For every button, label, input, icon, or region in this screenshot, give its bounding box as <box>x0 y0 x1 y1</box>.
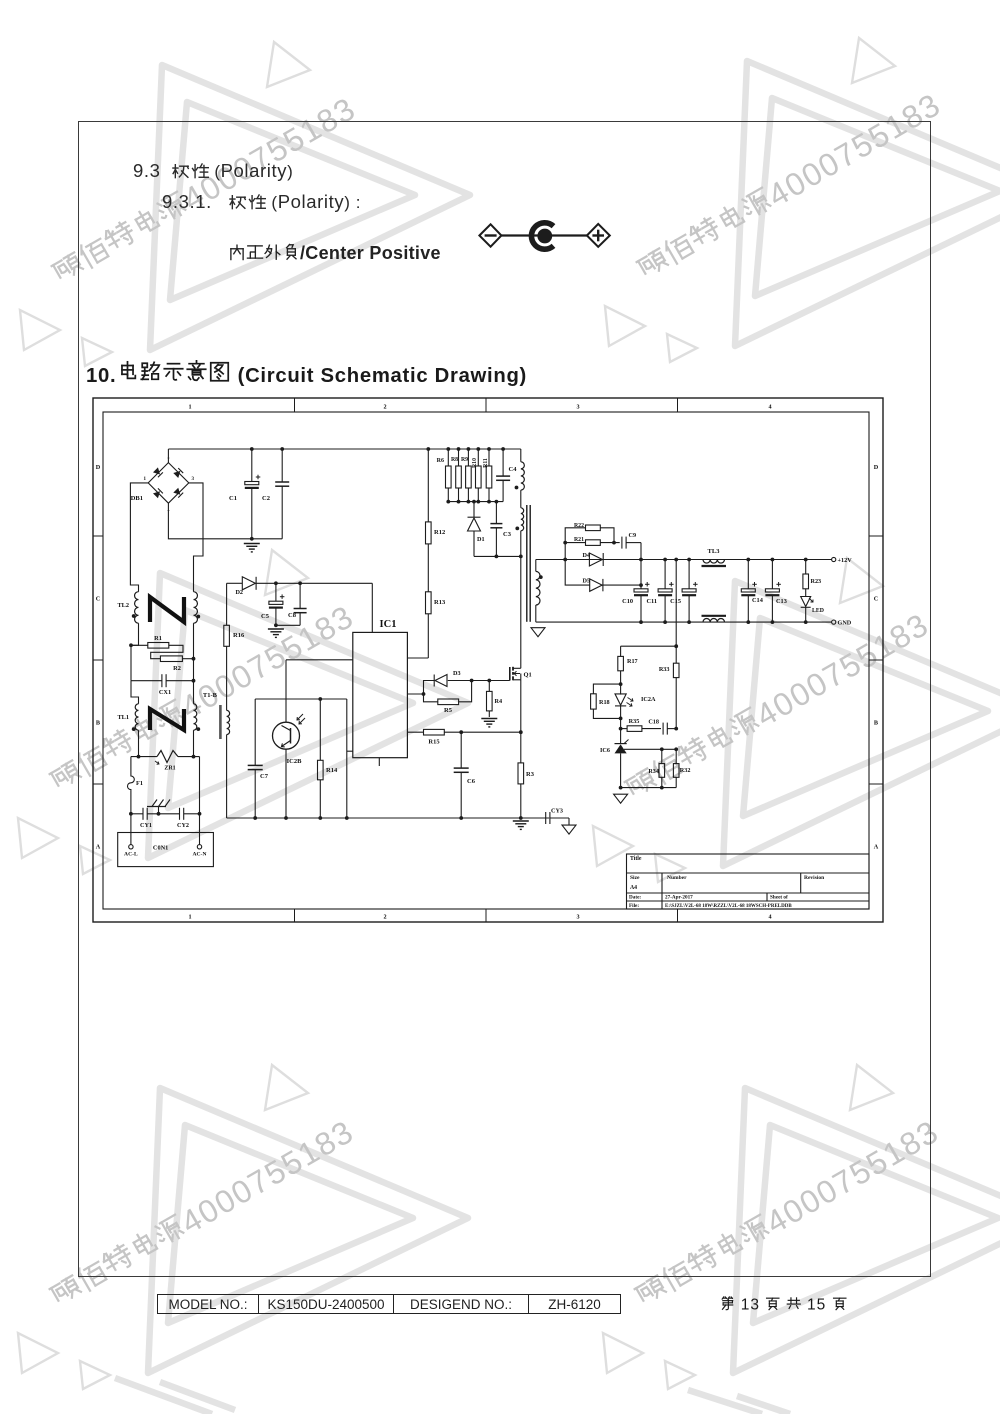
svg-text:C10: C10 <box>622 598 633 605</box>
svg-text:R15: R15 <box>428 739 440 746</box>
svg-text:R3: R3 <box>526 771 535 778</box>
svg-text:File:: File: <box>629 903 639 909</box>
svg-text:Size: Size <box>630 875 640 881</box>
svg-text:R33: R33 <box>659 666 670 673</box>
svg-text:IC2A: IC2A <box>641 696 656 703</box>
svg-text:D2: D2 <box>235 589 243 596</box>
svg-text:2: 2 <box>383 404 386 411</box>
svg-text:C2: C2 <box>262 495 270 502</box>
svg-text:R18: R18 <box>599 699 610 706</box>
svg-text:CY2: CY2 <box>177 822 189 829</box>
svg-text:R21: R21 <box>574 537 584 543</box>
svg-text:1: 1 <box>188 914 191 921</box>
svg-text:DB1: DB1 <box>131 495 143 502</box>
svg-text:B: B <box>874 720 878 727</box>
svg-text:A: A <box>874 844 879 851</box>
svg-text:R8: R8 <box>451 457 458 463</box>
svg-text:R32: R32 <box>680 767 691 774</box>
svg-text:E:\SJZL\V2L-68 18W\RZZL\V2L-68: E:\SJZL\V2L-68 18W\RZZL\V2L-68 18WSCH-PR… <box>665 904 792 909</box>
svg-text:C13: C13 <box>776 598 787 605</box>
svg-text:ZR1: ZR1 <box>164 766 175 772</box>
svg-text:D: D <box>874 464 879 471</box>
svg-text:A: A <box>96 844 101 851</box>
svg-text:R12: R12 <box>434 529 445 536</box>
svg-text:C1: C1 <box>229 495 237 502</box>
svg-text:Q1: Q1 <box>524 672 532 679</box>
svg-text:1: 1 <box>188 404 191 411</box>
svg-text:R34: R34 <box>648 768 659 775</box>
svg-text:F1: F1 <box>136 780 143 787</box>
svg-text:LED: LED <box>812 608 824 614</box>
svg-text:B: B <box>96 720 100 727</box>
svg-text:3: 3 <box>192 477 195 482</box>
svg-text:R10: R10 <box>472 458 478 468</box>
svg-text:D1: D1 <box>477 536 485 543</box>
svg-text:R4: R4 <box>495 698 503 705</box>
svg-text:TL1: TL1 <box>117 714 129 721</box>
svg-text:C8: C8 <box>288 612 297 619</box>
svg-text:27-Apr-2017: 27-Apr-2017 <box>665 895 693 901</box>
svg-text:C14: C14 <box>752 597 764 604</box>
svg-text:AC-N: AC-N <box>193 852 207 858</box>
svg-text:Number: Number <box>667 875 687 881</box>
svg-text:3: 3 <box>576 404 579 411</box>
svg-text:R6: R6 <box>437 458 444 464</box>
svg-text:TL3: TL3 <box>708 548 721 555</box>
svg-text:C0N1: C0N1 <box>153 845 168 852</box>
svg-text:Revision: Revision <box>804 875 824 881</box>
svg-text:T1-B: T1-B <box>203 692 218 699</box>
svg-text:IC2B: IC2B <box>287 758 302 765</box>
svg-text:C: C <box>96 596 100 603</box>
svg-text:3: 3 <box>576 914 579 921</box>
svg-text:Date:: Date: <box>629 895 641 901</box>
svg-text:+12V: +12V <box>838 557 853 564</box>
svg-text:R22: R22 <box>574 523 584 529</box>
svg-text:1: 1 <box>144 477 147 482</box>
svg-text:R17: R17 <box>627 658 638 665</box>
svg-text:D: D <box>96 464 101 471</box>
svg-text:2: 2 <box>383 914 386 921</box>
svg-text:IC6: IC6 <box>600 747 610 754</box>
svg-text:CY3: CY3 <box>551 808 563 815</box>
svg-text:~: ~ <box>167 456 170 461</box>
svg-text:TL2: TL2 <box>117 602 129 609</box>
svg-text:R14: R14 <box>326 767 338 774</box>
svg-text:CX1: CX1 <box>159 689 171 696</box>
svg-text:C18: C18 <box>648 719 659 726</box>
svg-text:R5: R5 <box>444 707 453 714</box>
svg-text:R16: R16 <box>233 632 245 639</box>
svg-text:Sheet of: Sheet of <box>770 895 788 901</box>
svg-text:R11: R11 <box>483 458 489 468</box>
svg-text:D5: D5 <box>582 578 590 585</box>
svg-text:GND: GND <box>838 620 852 627</box>
svg-text:C: C <box>874 596 878 603</box>
svg-text:4: 4 <box>768 914 771 921</box>
svg-text:C9: C9 <box>629 532 637 539</box>
svg-text:C3: C3 <box>503 531 512 538</box>
svg-text:Title: Title <box>630 856 642 862</box>
svg-text:C5: C5 <box>261 613 270 620</box>
svg-text:D3: D3 <box>453 670 461 677</box>
svg-text:D4: D4 <box>582 552 590 559</box>
svg-text:CY1: CY1 <box>140 822 152 829</box>
svg-text:R1: R1 <box>154 635 162 642</box>
svg-text:R9: R9 <box>461 457 468 463</box>
svg-text:C7: C7 <box>260 773 269 780</box>
svg-text:R2: R2 <box>173 665 181 672</box>
svg-text:4: 4 <box>768 404 771 411</box>
svg-text:R23: R23 <box>811 578 822 585</box>
svg-text:R35: R35 <box>629 718 640 725</box>
svg-text:A4: A4 <box>630 885 637 891</box>
svg-text:C4: C4 <box>509 466 518 473</box>
svg-text:C15: C15 <box>670 598 681 605</box>
svg-text:AC-L: AC-L <box>124 852 138 858</box>
svg-text:IC1: IC1 <box>380 619 397 630</box>
svg-text:C6: C6 <box>467 778 476 785</box>
svg-text:R13: R13 <box>434 599 446 606</box>
svg-text:C11: C11 <box>647 598 658 605</box>
